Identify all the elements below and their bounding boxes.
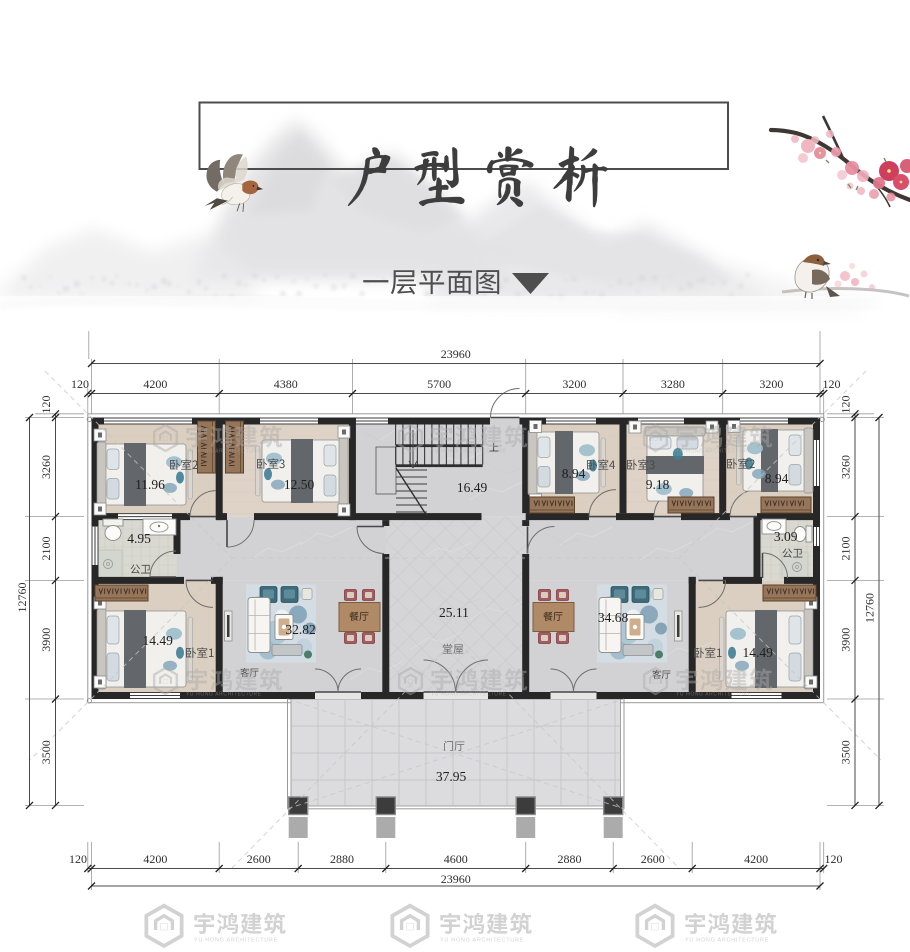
svg-text:120: 120 xyxy=(39,396,53,414)
svg-text:25.11: 25.11 xyxy=(439,605,469,620)
svg-text:3500: 3500 xyxy=(839,740,853,764)
svg-text:4.95: 4.95 xyxy=(127,531,151,546)
svg-text:2100: 2100 xyxy=(39,537,53,561)
svg-text:2600: 2600 xyxy=(247,852,271,866)
svg-text:5700: 5700 xyxy=(427,377,451,391)
svg-text:37.95: 37.95 xyxy=(436,769,467,784)
svg-text:120: 120 xyxy=(825,852,843,866)
svg-text:16.49: 16.49 xyxy=(457,480,488,495)
svg-text:4200: 4200 xyxy=(744,852,768,866)
svg-text:12760: 12760 xyxy=(863,593,877,623)
svg-text:3260: 3260 xyxy=(839,455,853,479)
svg-text:14.49: 14.49 xyxy=(143,633,174,648)
svg-text:4380: 4380 xyxy=(274,377,298,391)
svg-text:34.68: 34.68 xyxy=(598,610,629,625)
svg-text:4200: 4200 xyxy=(143,852,167,866)
svg-text:2880: 2880 xyxy=(330,852,354,866)
svg-text:12760: 12760 xyxy=(15,583,29,613)
svg-text:9.18: 9.18 xyxy=(646,477,670,492)
svg-text:3500: 3500 xyxy=(39,740,53,764)
svg-text:12.50: 12.50 xyxy=(284,477,315,492)
svg-text:8.94: 8.94 xyxy=(562,466,586,481)
svg-text:3900: 3900 xyxy=(39,628,53,652)
svg-text:3200: 3200 xyxy=(759,377,783,391)
svg-text:8.94: 8.94 xyxy=(765,471,789,486)
svg-text:3.09: 3.09 xyxy=(774,529,798,544)
svg-text:3280: 3280 xyxy=(661,377,685,391)
svg-text:3900: 3900 xyxy=(839,628,853,652)
svg-text:23960: 23960 xyxy=(441,872,471,886)
svg-text:3260: 3260 xyxy=(39,455,53,479)
svg-text:2880: 2880 xyxy=(558,852,582,866)
svg-text:120: 120 xyxy=(823,377,841,391)
svg-text:120: 120 xyxy=(69,852,87,866)
svg-text:14.49: 14.49 xyxy=(743,645,774,660)
svg-text:23960: 23960 xyxy=(441,347,471,361)
svg-text:4200: 4200 xyxy=(143,377,167,391)
svg-text:3200: 3200 xyxy=(562,377,586,391)
svg-text:120: 120 xyxy=(71,377,89,391)
svg-text:11.96: 11.96 xyxy=(135,477,165,492)
svg-text:32.82: 32.82 xyxy=(285,622,315,637)
svg-text:2100: 2100 xyxy=(839,537,853,561)
svg-text:2600: 2600 xyxy=(641,852,665,866)
svg-text:4600: 4600 xyxy=(444,852,468,866)
svg-text:120: 120 xyxy=(839,396,853,414)
